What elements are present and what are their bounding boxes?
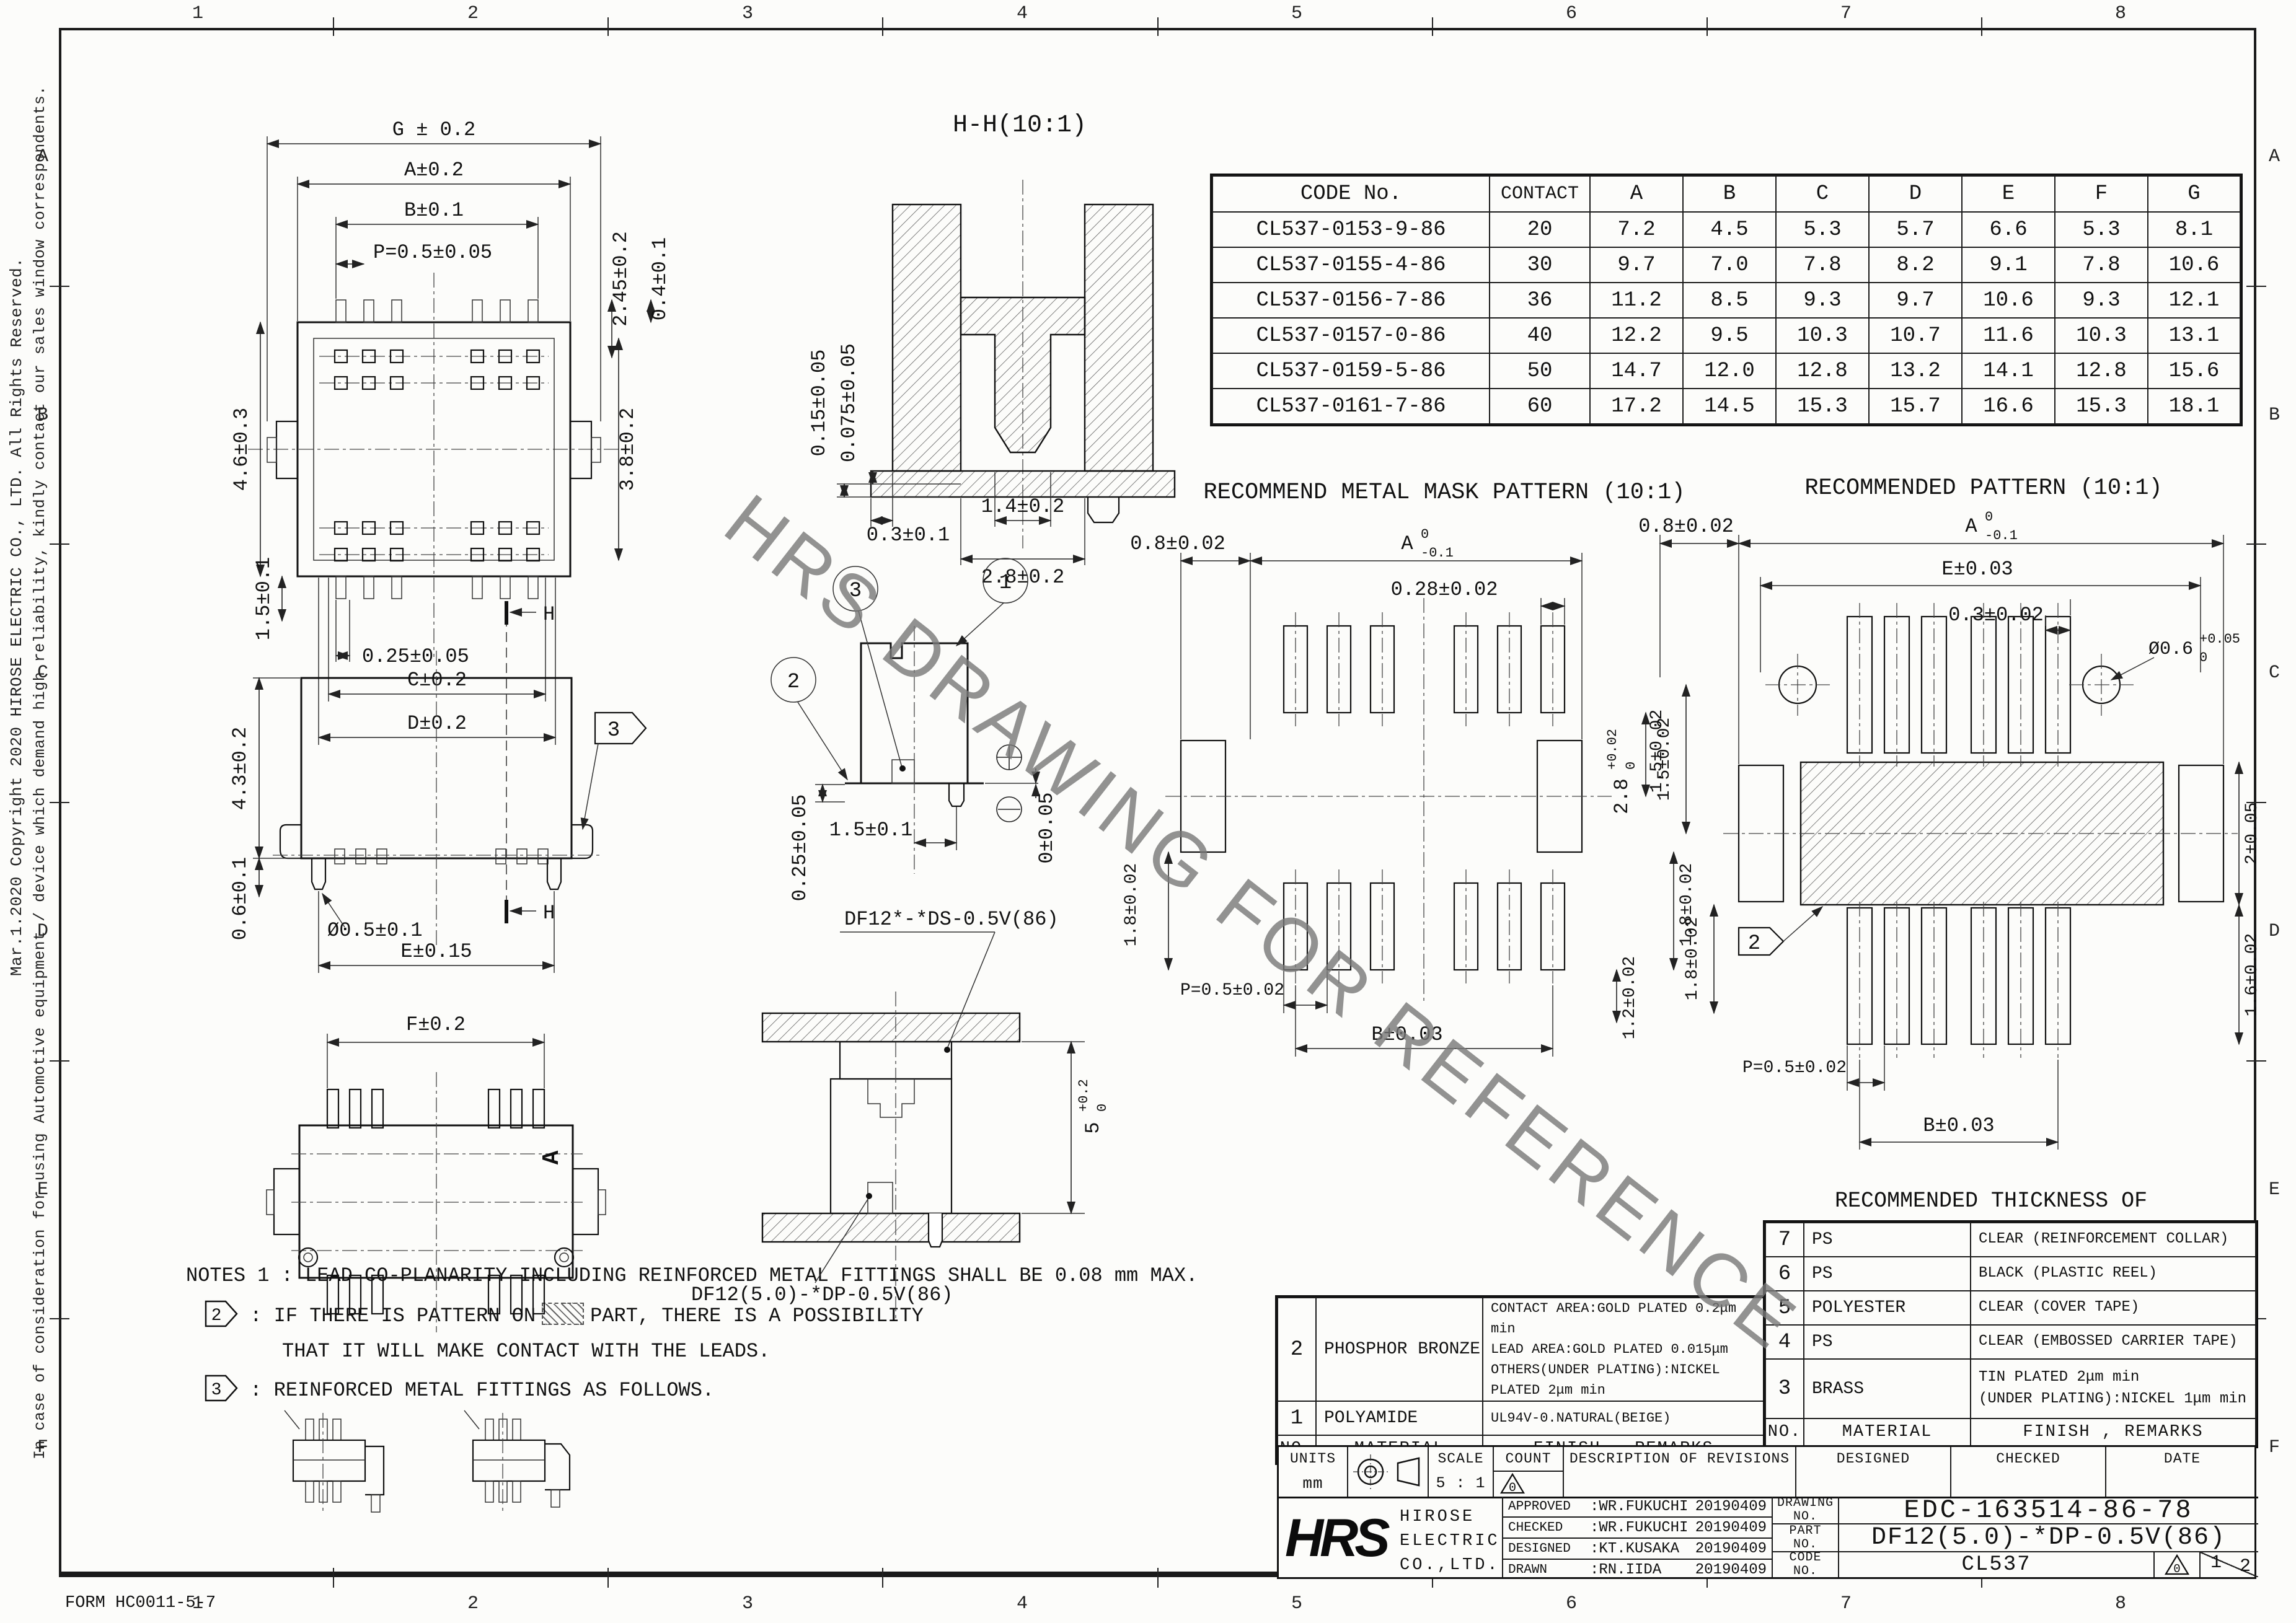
cell: CL537-0153-9-86 [1212,212,1490,247]
cell: 14.1 [1962,353,2055,389]
recommended-pattern: RECOMMENDED PATTERN (10:1) 0.8±0.02 [1638,475,2262,1249]
sig-date: 20190409 [1695,1541,1772,1557]
cell: 8.2 [1869,247,1962,283]
balloon-2: 2 [787,671,800,694]
date-label: DATE [2106,1451,2258,1467]
sig-date: 20190409 [1695,1498,1772,1515]
projection-symbol-cell [1347,1447,1428,1497]
table-row: 6 PS BLACK (PLASTIC REEL) [1765,1257,2256,1291]
code-rev-cell: 0 [2153,1552,2199,1577]
sig-row-drawn: DRAWN :RN.IIDA 20190409 [1503,1560,1772,1580]
fitting-sketch-1 [285,1410,384,1512]
code-dimension-table: CODE No. CONTACT A B C D E F G CL537-015… [1212,175,2241,424]
cell: FINISH , REMARKS [1971,1418,2256,1446]
cell: 16.6 [1962,389,2055,424]
cell: 50 [1490,353,1590,389]
cell: 12.2 [1590,318,1683,353]
cell: UL94V-0.NATURAL(BEIGE) [1483,1401,1764,1435]
balloon-1: 1 [999,571,1012,595]
cell: POLYAMIDE [1316,1401,1483,1435]
table-row: CL537-0153-9-86207.24.55.35.76.65.38.1 [1212,212,2240,247]
page-number: 1 [2210,1552,2222,1573]
dim-label: 0.3±0.02 [1948,604,2044,627]
dim-tol: 0 [2199,650,2207,666]
dim-label: 1.5±0.1 [252,557,275,640]
cell: 60 [1490,389,1590,424]
designed-cell: DESIGNED [1795,1447,1950,1497]
section-title: H-H(10:1) [953,112,1087,139]
cell: 12.8 [1776,353,1869,389]
dim-label: B±0.1 [404,199,464,222]
dim-label: 0.25±0.05 [788,794,811,902]
cell: E [1962,176,2055,212]
dim-label: B±0.03 [1923,1114,1994,1137]
revisions-cell: DESCRIPTION OF REVISIONS [1563,1447,1795,1497]
cell: PS [1804,1223,1971,1257]
cell: 9.5 [1683,318,1776,353]
cell: CL537-0159-5-86 [1212,353,1490,389]
dim-tol: 0 [1623,762,1639,770]
drawing-no-row: DRAWINGNO. EDC-163514-86-78 [1773,1497,2258,1524]
mask-title: RECOMMEND METAL MASK PATTERN (10:1) [1203,480,1685,506]
cell: 14.5 [1683,389,1776,424]
sig-name: :RN.IIDA [1590,1562,1695,1578]
dim-label: 2.8 [1610,778,1633,814]
section-view: H-H(10:1) 0.15±0.05 0.075±0.05 0.3±0.1 1… [808,112,1175,589]
dim-label: A [1401,532,1413,555]
dim-label: 5 [1082,1122,1105,1133]
cell: 11.2 [1590,283,1683,318]
company-line: HIROSE [1400,1505,1500,1529]
part-no-value: DF12(5.0)-*DP-0.5V(86) [1839,1524,2258,1552]
table-row: 4 PS CLEAR (EMBOSSED CARRIER TAPE) [1765,1325,2256,1359]
cell: 7.8 [2055,247,2148,283]
cell: 36 [1490,283,1590,318]
dim-tol: 0 [1985,509,1993,525]
cell: CL537-0157-0-86 [1212,318,1490,353]
cell: 7 [1765,1223,1804,1257]
code-no-label: CODENO. [1773,1552,1839,1577]
dim-label: 4.3±0.2 [229,727,252,810]
dim-label: 3.8±0.2 [616,408,639,491]
cell: CODE No. [1212,176,1490,212]
cell: CL537-0156-7-86 [1212,283,1490,318]
cell: 30 [1490,247,1590,283]
cell: 8.5 [1683,283,1776,318]
table-row: CL537-0157-0-864012.29.510.310.711.610.3… [1212,318,2240,353]
sig-label: APPROVED [1503,1500,1590,1514]
dim-tol: +0.05 [2199,631,2240,647]
table-row: 5 POLYESTER CLEAR (COVER TAPE) [1765,1291,2256,1325]
cell: 9.1 [1962,247,2055,283]
cell: 12.1 [2148,283,2240,318]
dim-label: 0.6±0.1 [229,857,252,940]
sig-name: :WR.FUKUCHI [1590,1498,1695,1515]
cell: 9.3 [2055,283,2148,318]
units-label: UNITS [1279,1451,1347,1467]
cell: 7.0 [1683,247,1776,283]
cell: 1 [1278,1401,1316,1435]
svg-text:0: 0 [1509,1481,1516,1495]
table-row: CL537-0161-7-866017.214.515.315.716.615.… [1212,389,2240,424]
cell: CLEAR (COVER TAPE) [1971,1291,2256,1325]
cell: CLEAR (REINFORCEMENT COLLAR) [1971,1223,2256,1257]
dim-label: 0.075±0.05 [837,343,860,462]
dim-label: C±0.2 [407,669,467,692]
code-no-row: CODENO. CL537 0 1 2 [1773,1552,2258,1577]
balloon-3: 3 [849,579,862,603]
fitting-sketch-2 [464,1410,570,1512]
solder-note: RECOMMENDED THICKNESS OF [1835,1189,2147,1213]
cell: PS [1804,1257,1971,1291]
cell: 13.1 [2148,318,2240,353]
page-total: 2 [2240,1556,2251,1577]
cell: 10.7 [1869,318,1962,353]
revision-triangle-icon: 0 [1499,1472,1526,1495]
cell: 10.6 [2148,247,2240,283]
code-no-value: CL537 [1839,1553,2153,1577]
dim-label: F±0.2 [406,1013,466,1036]
dim-label: 0±0.05 [1035,792,1058,863]
sig-row-designed: DESIGNED :KT.KUSAKA 20190409 [1503,1539,1772,1560]
table-row: CL537-0156-7-863611.28.59.39.710.69.312.… [1212,283,2240,318]
table-row: 2 PHOSPHOR BRONZE CONTACT AREA:GOLD PLAT… [1278,1298,1764,1401]
cell: 12.0 [1683,353,1776,389]
cell: BLACK (PLASTIC REEL) [1971,1257,2256,1291]
dim-label: Ø0.6 [2148,639,2193,660]
cell: 6.6 [1962,212,2055,247]
dim-label: D±0.2 [407,712,467,735]
dim-label: 2±0.05 [2243,803,2262,865]
dim-tol: 0 [1095,1104,1110,1112]
dim-label: 0.4±0.1 [648,237,671,320]
cell: CL537-0155-4-86 [1212,247,1490,283]
dim-label: 1.5±0.1 [829,819,912,842]
dim-label: A±0.2 [404,159,464,182]
table-row: 1 POLYAMIDE UL94V-0.NATURAL(BEIGE) [1278,1401,1764,1435]
cell: 14.7 [1590,353,1683,389]
drawing-no-value: EDC-163514-86-78 [1839,1495,2258,1525]
section-mark: H [543,902,555,925]
sig-label: CHECKED [1503,1521,1590,1535]
checked-label: CHECKED [1951,1451,2105,1467]
dim-label: 0.28±0.02 [1391,578,1498,601]
cell: 10.3 [1776,318,1869,353]
dim-tol: -0.1 [1985,528,2018,543]
finish-line: LEAD AREA:GOLD PLATED 0.015μm [1491,1339,1764,1360]
count-label: COUNT [1494,1451,1563,1472]
table-row: CL537-0159-5-865014.712.012.813.214.112.… [1212,353,2240,389]
svg-text:0: 0 [2173,1562,2180,1576]
dim-tol: +0.2 [1076,1079,1092,1112]
finish-line: OTHERS(UNDER PLATING):NICKEL PLATED 2μm … [1491,1360,1764,1401]
logo-cell: HRS HIROSE ELECTRIC CO.,LTD. [1279,1497,1502,1577]
finish-line: (UNDER PLATING):NICKEL 1μm min [1979,1389,2255,1410]
view-marker-a: A [539,1150,565,1164]
cell: CLEAR (EMBOSSED CARRIER TAPE) [1971,1325,2256,1359]
cell: 9.7 [1590,247,1683,283]
cell: CONTACT AREA:GOLD PLATED 0.2μm min LEAD … [1483,1298,1764,1401]
cell: 20 [1490,212,1590,247]
cell: POLYESTER [1804,1291,1971,1325]
mated-view: DF12*-*DS-0.5V(86) DF12(5.0)-*DP-0.5V(86… [691,908,1110,1320]
cell: NO. [1765,1418,1804,1446]
dim-label: 1.8±0.02 [1683,917,1702,1000]
cell: 8.1 [2148,212,2240,247]
cell: 2 [1278,1298,1316,1401]
cell: 3 [1765,1359,1804,1418]
cell: 10.3 [2055,318,2148,353]
cell: 7.2 [1590,212,1683,247]
table-row: 7 PS CLEAR (REINFORCEMENT COLLAR) [1765,1223,2256,1257]
dim-label: P=0.5±0.02 [1180,981,1284,1000]
cell: A [1590,176,1683,212]
units-value: mm [1279,1474,1347,1493]
finish-line: TIN PLATED 2μm min [1979,1367,2255,1389]
callout-3: 3 [607,719,620,742]
cell: CL537-0161-7-86 [1212,389,1490,424]
dim-tol: -0.1 [1421,545,1454,561]
dim-label: 1.5±0.02 [1655,718,1674,801]
dim-label: 0.25±0.05 [362,645,469,668]
page-cell: 1 2 [2199,1552,2258,1577]
part-no-label: PARTNO. [1773,1524,1839,1551]
cell: 13.2 [1869,353,1962,389]
cell: C [1776,176,1869,212]
sig-label: DESIGNED [1503,1542,1590,1556]
dim-label: 0.8±0.02 [1638,515,1734,538]
sig-name: :KT.KUSAKA [1590,1541,1695,1557]
label-plug: DF12(5.0)-*DP-0.5V(86) [691,1283,953,1306]
third-angle-projection-icon [1348,1447,1426,1494]
cell: 12.8 [2055,353,2148,389]
callout-2: 2 [1748,932,1760,956]
signatures-cell: APPROVED :WR.FUKUCHI 20190409 CHECKED :W… [1502,1497,1772,1577]
pattern-title: RECOMMENDED PATTERN (10:1) [1804,475,2162,501]
dim-label: 0.3±0.1 [867,524,950,547]
company-line: ELECTRIC [1400,1529,1500,1554]
cell: 15.3 [1776,389,1869,424]
dim-label: E±0.15 [400,940,472,963]
detail-view: 3 1 2 0.25±0.05 1.5±0.1 0±0.05 [771,558,1058,901]
table-header-row: CODE No. CONTACT A B C D E F G [1212,176,2240,212]
cell: B [1683,176,1776,212]
company-line: CO.,LTD. [1400,1554,1500,1578]
dim-label: E±0.03 [1941,558,2013,581]
materials-table-left: 2 PHOSPHOR BRONZE CONTACT AREA:GOLD PLAT… [1277,1297,1765,1463]
cell: TIN PLATED 2μm min (UNDER PLATING):NICKE… [1971,1359,2256,1418]
cell: 40 [1490,318,1590,353]
units-cell: UNITS mm [1279,1447,1347,1497]
sig-name: :WR.FUKUCHI [1590,1520,1695,1536]
revision-triangle-icon: 0 [2164,1554,2190,1576]
contacts [335,350,539,561]
title-block: UNITS mm SCALE 5 : 1 COUNT 0 DESCRIPTION [1277,1445,2256,1579]
cell: 5.7 [1869,212,1962,247]
cell: 9.3 [1776,283,1869,318]
cell: 5.3 [2055,212,2148,247]
dim-label: 2.8±0.2 [981,566,1064,589]
plan-view: G ± 0.2 A±0.2 B±0.1 P=0.5±0.05 2.45±0.2 … [230,118,671,745]
dim-label: 1.8±0.02 [1122,863,1141,946]
cell: 15.7 [1869,389,1962,424]
cell: 15.6 [2148,353,2240,389]
cell: 17.2 [1590,389,1683,424]
cell: MATERIAL [1804,1418,1971,1446]
cell: 15.3 [2055,389,2148,424]
designed-label: DESIGNED [1796,1451,1950,1467]
mask-pattern: RECOMMEND METAL MASK PATTERN (10:1) 0.8±… [1122,480,1697,1057]
cell: 10.6 [1962,283,2055,318]
cell: BRASS [1804,1359,1971,1418]
part-no-row: PARTNO. DF12(5.0)-*DP-0.5V(86) [1773,1524,2258,1552]
dim-label: 0.8±0.02 [1130,532,1225,555]
dim-label: B±0.03 [1371,1023,1442,1046]
table-row: CL537-0155-4-86309.77.07.88.29.17.810.6 [1212,247,2240,283]
dim-label: G ± 0.2 [392,118,475,141]
cell: PS [1804,1325,1971,1359]
dim-tol: 0 [1421,527,1429,542]
cell: G [2148,176,2240,212]
scale-label: SCALE [1429,1451,1493,1467]
dim-label: A [1965,515,1977,538]
cell: D [1869,176,1962,212]
dim-label: 1.6±0.02 [2243,933,2262,1016]
dim-label: 4.6±0.3 [230,408,253,491]
dim-tol: +0.02 [1605,729,1620,770]
numbers-cell: DRAWINGNO. EDC-163514-86-78 PARTNO. DF12… [1772,1497,2258,1577]
checked-cell: CHECKED [1950,1447,2105,1497]
cell: 6 [1765,1257,1804,1291]
cell: 9.7 [1869,283,1962,318]
cell: CONTACT [1490,176,1590,212]
date-cell: DATE [2105,1447,2258,1497]
bottom-view: F±0.2 A [267,1013,606,1332]
revisions-label: DESCRIPTION OF REVISIONS [1564,1451,1795,1467]
scale-cell: SCALE 5 : 1 [1428,1447,1493,1497]
dim-label: P=0.5±0.05 [373,241,492,264]
drawing-no-label: DRAWINGNO. [1773,1497,1839,1523]
sig-date: 20190409 [1695,1562,1772,1578]
count-cell: COUNT 0 [1493,1447,1563,1497]
hrs-logo: HRS [1285,1508,1387,1569]
dim-label: 1.2±0.02 [1620,956,1640,1039]
finish-line: CONTACT AREA:GOLD PLATED 0.2μm min [1491,1298,1764,1339]
cell: 5.3 [1776,212,1869,247]
cell: PHOSPHOR BRONZE [1316,1298,1483,1401]
cell: F [2055,176,2148,212]
table-header-row: NO. MATERIAL FINISH , REMARKS [1765,1418,2256,1446]
table-row: 3 BRASS TIN PLATED 2μm min (UNDER PLATIN… [1765,1359,2256,1418]
dim-label: 0.15±0.05 [808,350,831,457]
cell: 11.6 [1962,318,2055,353]
cell: 4.5 [1683,212,1776,247]
cell: 18.1 [2148,389,2240,424]
sig-date: 20190409 [1695,1520,1772,1536]
dim-label: 1.4±0.2 [981,495,1064,518]
sig-label: DRAWN [1503,1563,1590,1577]
section-mark: H [543,603,555,626]
dim-label: P=0.5±0.02 [1742,1058,1847,1078]
sig-row-checked: CHECKED :WR.FUKUCHI 20190409 [1503,1518,1772,1539]
cell: 4 [1765,1325,1804,1359]
cell: 7.8 [1776,247,1869,283]
scale-value: 5 : 1 [1429,1474,1493,1492]
dim-label: 2.45±0.2 [609,231,632,327]
cell: 5 [1765,1291,1804,1325]
sig-row-approved: APPROVED :WR.FUKUCHI 20190409 [1503,1497,1772,1518]
materials-table-right: 7 PS CLEAR (REINFORCEMENT COLLAR) 6 PS B… [1765,1222,2256,1446]
drawing-sheet: G ± 0.2 A±0.2 B±0.1 P=0.5±0.05 2.45±0.2 … [0,0,2296,1623]
label-receptacle: DF12*-*DS-0.5V(86) [844,908,1059,931]
